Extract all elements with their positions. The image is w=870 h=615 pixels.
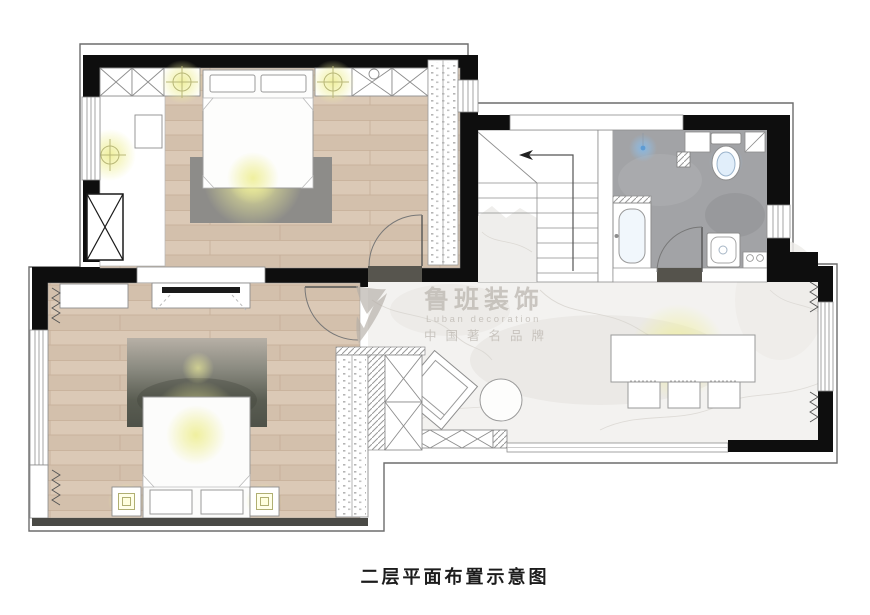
washing-machine-icon <box>707 233 740 267</box>
stair-bulkhead <box>510 115 683 130</box>
duct-shaft <box>87 194 123 260</box>
floorplan-canvas: 鲁班装饰 Luban decoration 中国著名品牌 二层平面布置示意图 <box>0 0 870 615</box>
table-lamp-icon <box>119 494 135 510</box>
bed-bottom <box>143 397 250 518</box>
nightstand-right <box>246 483 282 519</box>
wall-niche <box>137 267 265 283</box>
bed-top <box>203 70 313 204</box>
door-a-threshold <box>368 266 422 282</box>
window-b-left <box>30 330 48 518</box>
watermark-brand-cn: 鲁班装饰 <box>424 285 544 314</box>
nightstand-left <box>108 483 144 519</box>
table-lamp-icon <box>257 494 273 510</box>
dresser <box>60 284 128 308</box>
watermark-brand-en: Luban decoration <box>426 314 541 325</box>
window-bath-right <box>767 205 790 238</box>
window-a-right <box>458 80 478 112</box>
tv-icon <box>162 287 240 293</box>
plan-caption: 二层平面布置示意图 <box>361 566 550 587</box>
stair-void-marble <box>478 206 537 282</box>
bedside-table-top <box>135 115 162 148</box>
bathroom <box>613 130 767 282</box>
bath-door-threshold <box>657 268 702 282</box>
dining-chairs <box>628 381 740 408</box>
dining-table <box>611 335 755 382</box>
tv-cabinet <box>152 283 250 310</box>
bedroom-bottom <box>30 283 425 526</box>
toilet-halfwall <box>677 152 690 167</box>
shower-head-icon <box>641 146 646 151</box>
tile-shade <box>705 193 765 237</box>
sink-counter <box>743 252 767 268</box>
watermark-tagline: 中国著名品牌 <box>424 328 553 343</box>
window-living-right <box>818 302 833 391</box>
toilet-niche <box>685 132 710 152</box>
tub-cap-top <box>613 196 651 203</box>
toilet-icon <box>711 133 741 180</box>
bathtub-icon <box>613 203 651 269</box>
window-a-left <box>82 97 100 180</box>
round-side-table <box>480 379 522 421</box>
corner-shelf <box>745 132 765 152</box>
curtain-strip <box>428 60 458 265</box>
builtin-wardrobe <box>336 347 425 517</box>
staircase <box>478 130 613 282</box>
stair-bath-partition <box>598 130 613 282</box>
bedroom-bottom-wall <box>32 518 368 526</box>
rug-glow <box>182 352 214 384</box>
floorplan-svg: 鲁班装饰 Luban decoration 中国著名品牌 二层平面布置示意图 <box>0 0 870 615</box>
